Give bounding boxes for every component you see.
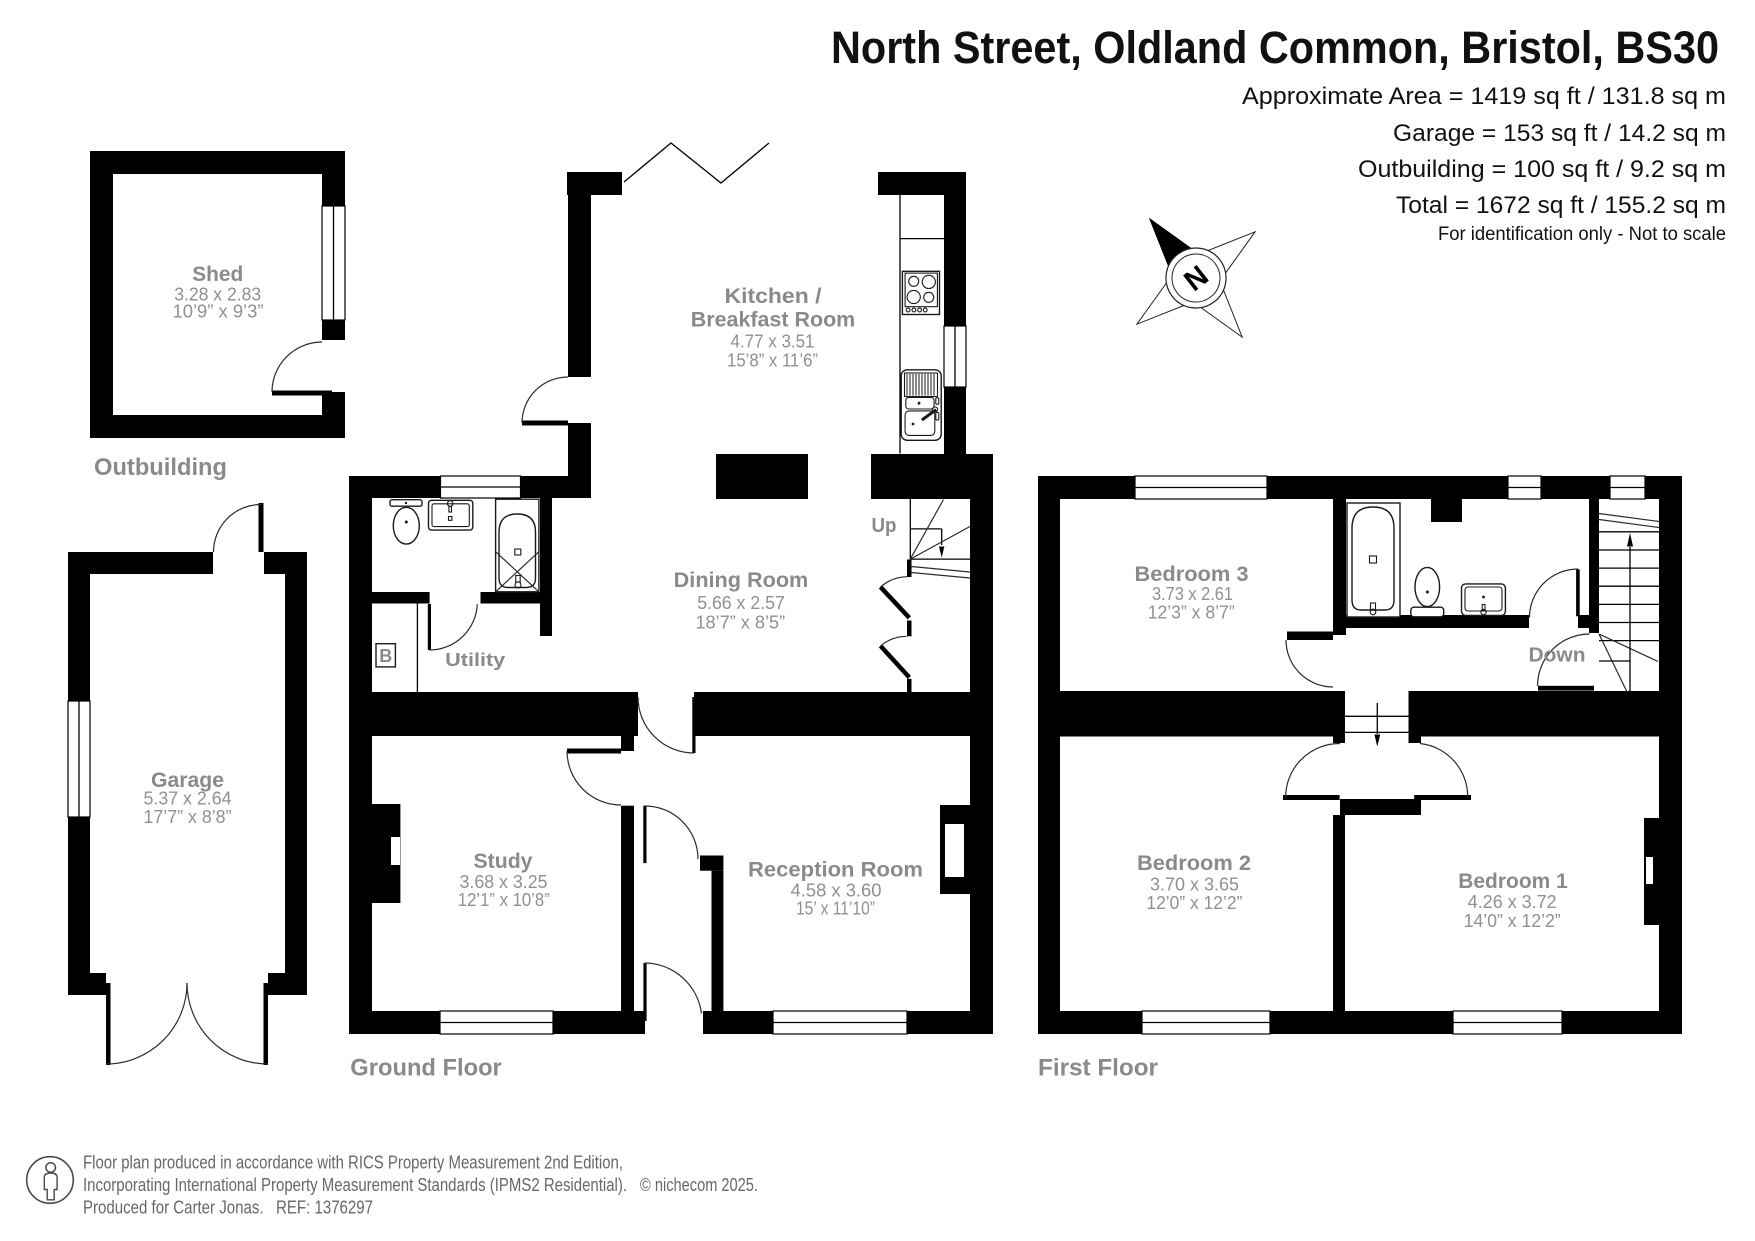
svg-text:Approximate Area = 1419 sq ft: Approximate Area = 1419 sq ft / 131.8 sq… [1242, 83, 1726, 110]
svg-text:15’8” x 11’6”: 15’8” x 11’6” [727, 350, 818, 371]
svg-text:Outbuilding = 100 sq ft / 9.2: Outbuilding = 100 sq ft / 9.2 sq m [1358, 156, 1726, 183]
svg-text:First Floor: First Floor [1038, 1055, 1158, 1082]
svg-text:Garage = 153 sq ft / 14.2 sq m: Garage = 153 sq ft / 14.2 sq m [1393, 120, 1726, 147]
svg-text:17’7” x 8’8”: 17’7” x 8’8” [144, 806, 232, 827]
svg-text:Up: Up [872, 515, 897, 537]
svg-text:4.26 x 3.72: 4.26 x 3.72 [1468, 891, 1557, 912]
svg-text:Ground Floor: Ground Floor [350, 1055, 502, 1082]
svg-text:Dining Room: Dining Room [674, 569, 809, 592]
svg-text:15’ x 11’10”: 15’ x 11’10” [796, 898, 875, 919]
svg-text:Utility: Utility [445, 650, 505, 670]
svg-text:Reception Room: Reception Room [748, 859, 923, 882]
svg-text:14’0” x 12’2”: 14’0” x 12’2” [1464, 910, 1561, 931]
svg-text:Down: Down [1529, 645, 1586, 667]
svg-text:Outbuilding: Outbuilding [94, 454, 227, 481]
svg-text:12’3” x 8’7”: 12’3” x 8’7” [1148, 602, 1235, 623]
svg-text:Study: Study [474, 850, 533, 873]
svg-text:12’1” x 10’8”: 12’1” x 10’8” [458, 889, 550, 910]
svg-text:© nichecom 2025.: © nichecom 2025. [640, 1175, 758, 1195]
svg-text:North Street, Oldland Common,: North Street, Oldland Common, Bristol, B… [831, 22, 1719, 73]
svg-text:Kitchen /: Kitchen / [725, 285, 822, 308]
svg-text:Produced for Carter Jonas. R: Produced for Carter Jonas. REF: 1376297 [83, 1198, 373, 1218]
svg-text:For identification only - Not: For identification only - Not to scale [1438, 224, 1726, 245]
svg-text:18’7” x 8’5”: 18’7” x 8’5” [695, 612, 785, 633]
svg-text:Floor plan produced in accorda: Floor plan produced in accordance with R… [83, 1153, 623, 1173]
svg-text:10’9” x 9’3”: 10’9” x 9’3” [173, 301, 264, 322]
svg-text:B: B [379, 646, 392, 666]
svg-text:Breakfast Room: Breakfast Room [691, 308, 856, 331]
svg-text:Bedroom 2: Bedroom 2 [1137, 852, 1251, 875]
svg-text:Bedroom 1: Bedroom 1 [1458, 870, 1568, 893]
svg-text:Total = 1672 sq ft / 155.2 sq: Total = 1672 sq ft / 155.2 sq m [1396, 192, 1726, 219]
svg-text:5.66 x 2.57: 5.66 x 2.57 [697, 592, 785, 613]
svg-text:Incorporating International Pr: Incorporating International Property Mea… [83, 1175, 627, 1195]
svg-text:4.77 x 3.51: 4.77 x 3.51 [731, 331, 815, 352]
svg-text:12’0” x 12’2”: 12’0” x 12’2” [1146, 892, 1242, 913]
